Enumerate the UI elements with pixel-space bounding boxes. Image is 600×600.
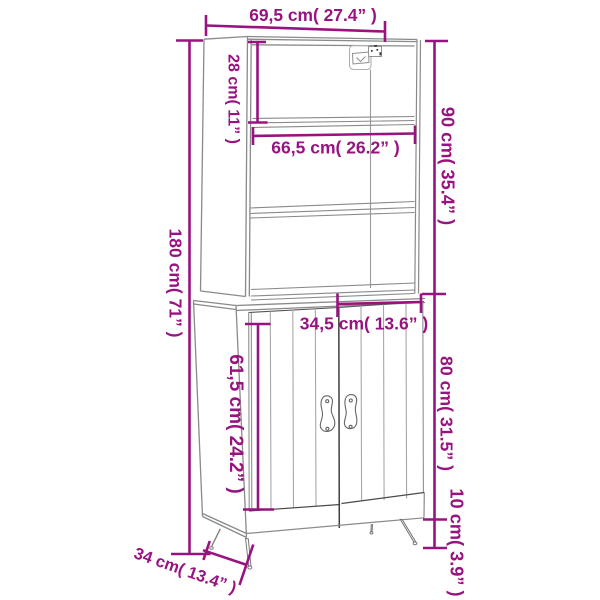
svg-text:34,5 cm( 13.6” ): 34,5 cm( 13.6” ) [300, 314, 428, 334]
svg-text:61,5 cm( 24.2” ): 61,5 cm( 24.2” ) [225, 354, 246, 493]
svg-text:80 cm( 31.5” ): 80 cm( 31.5” ) [437, 356, 457, 471]
svg-text:10 cm( 3.9” ): 10 cm( 3.9” ) [447, 488, 467, 596]
svg-text:28 cm( 11” ): 28 cm( 11” ) [225, 54, 242, 144]
svg-text:69,5 cm( 27.4” ): 69,5 cm( 27.4” ) [249, 5, 377, 25]
svg-text:66,5 cm( 26.2” ): 66,5 cm( 26.2” ) [271, 138, 399, 158]
svg-text:90 cm( 35.4” ): 90 cm( 35.4” ) [438, 107, 458, 225]
svg-text:180 cm( 71” ): 180 cm( 71” ) [166, 229, 186, 338]
